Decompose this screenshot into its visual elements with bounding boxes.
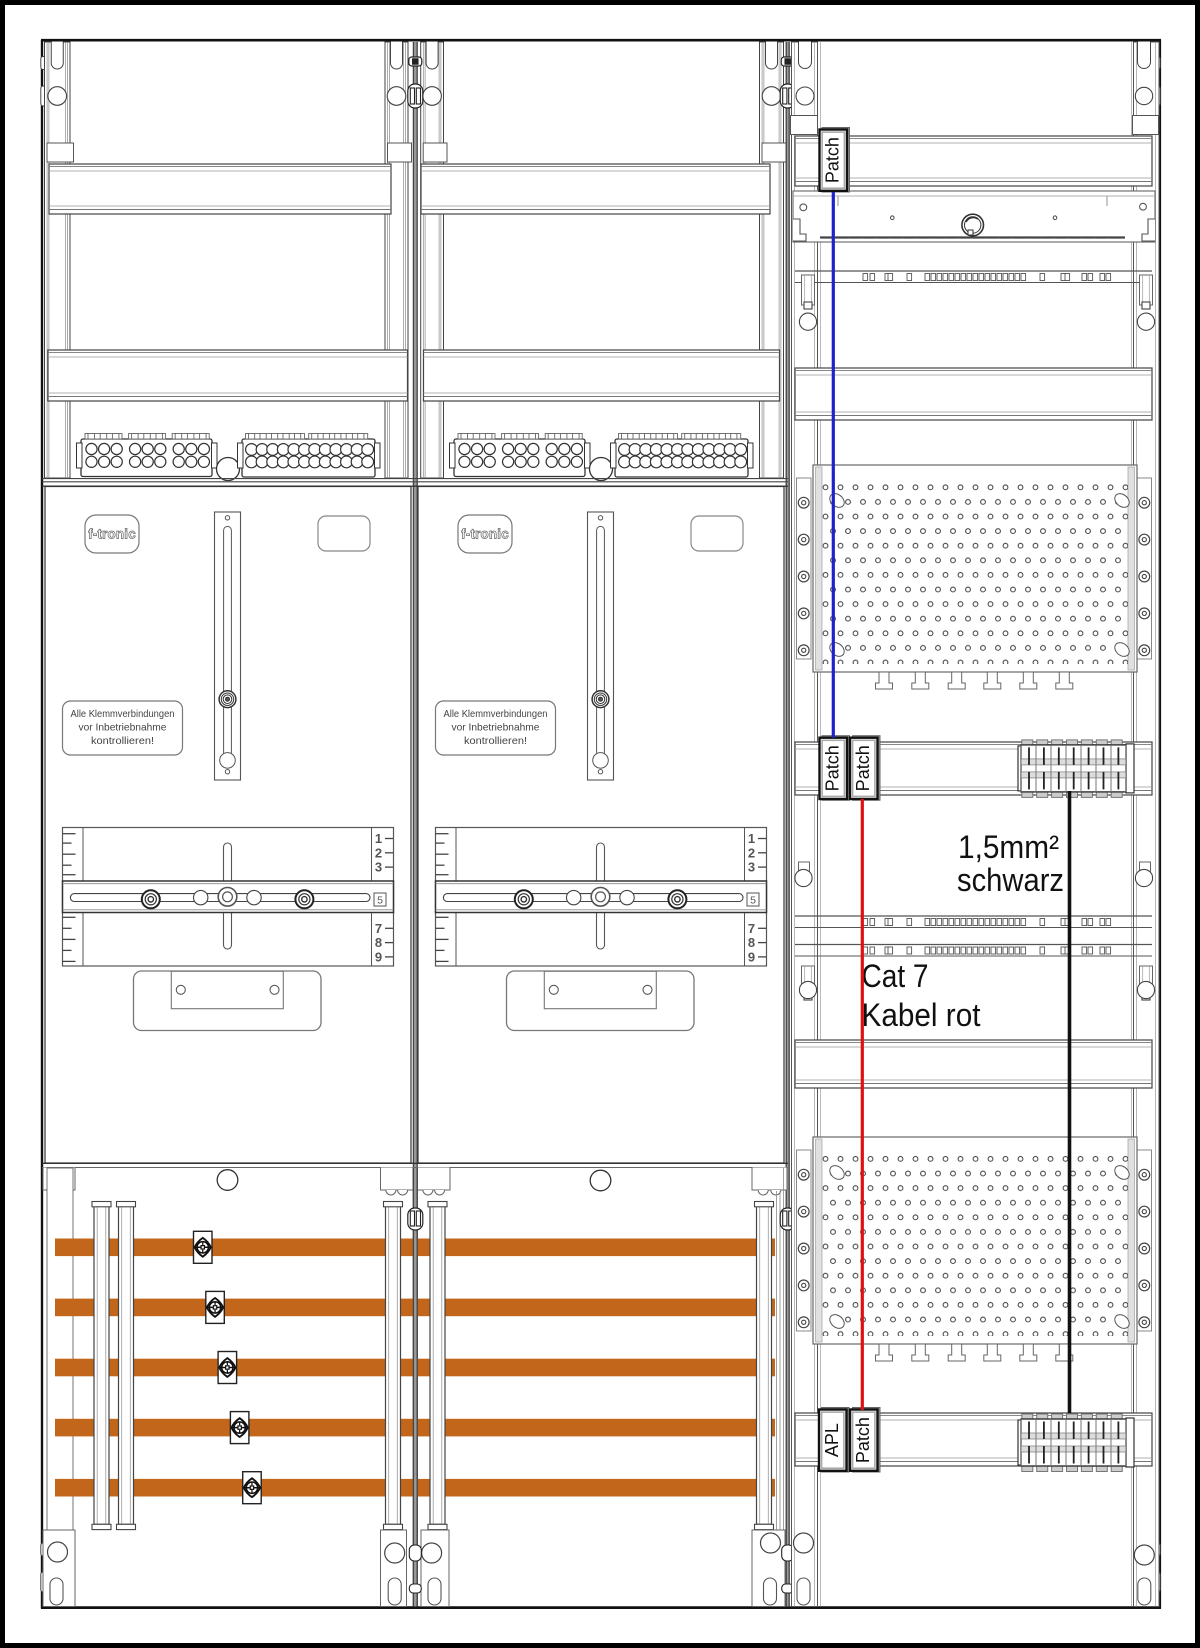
svg-text:5: 5: [750, 895, 756, 907]
svg-text:Patch: Patch: [823, 137, 843, 183]
svg-text:1: 1: [375, 831, 382, 846]
svg-text:8: 8: [375, 935, 382, 950]
svg-text:Kabel rot: Kabel rot: [862, 997, 981, 1033]
svg-text:7: 7: [748, 921, 755, 936]
svg-text:Alle Klemmverbindungen: Alle Klemmverbindungen: [71, 709, 175, 720]
svg-text:Alle Klemmverbindungen: Alle Klemmverbindungen: [444, 709, 548, 720]
svg-text:Cat 7: Cat 7: [862, 958, 929, 994]
svg-text:9: 9: [375, 949, 382, 964]
svg-text:f-tronic: f-tronic: [461, 527, 509, 542]
svg-text:f-tronic: f-tronic: [88, 527, 136, 542]
svg-text:3: 3: [375, 860, 382, 875]
svg-text:1,5mm²: 1,5mm²: [958, 829, 1059, 865]
svg-text:kontrollieren!: kontrollieren!: [464, 736, 527, 747]
svg-text:Patch: Patch: [853, 1417, 873, 1463]
svg-text:Patch: Patch: [853, 745, 873, 791]
svg-text:vor Inbetriebnahme: vor Inbetriebnahme: [452, 723, 540, 734]
svg-text:APL: APL: [822, 1423, 842, 1457]
svg-text:Patch: Patch: [823, 745, 843, 791]
svg-text:1: 1: [748, 831, 755, 846]
svg-text:3: 3: [748, 860, 755, 875]
svg-text:8: 8: [748, 935, 755, 950]
svg-text:2: 2: [375, 845, 382, 860]
svg-text:vor Inbetriebnahme: vor Inbetriebnahme: [79, 723, 167, 734]
svg-text:kontrollieren!: kontrollieren!: [91, 736, 154, 747]
svg-text:schwarz: schwarz: [957, 862, 1064, 898]
svg-text:7: 7: [375, 921, 382, 936]
svg-text:5: 5: [377, 895, 383, 907]
svg-text:2: 2: [748, 845, 755, 860]
svg-text:9: 9: [748, 949, 755, 964]
